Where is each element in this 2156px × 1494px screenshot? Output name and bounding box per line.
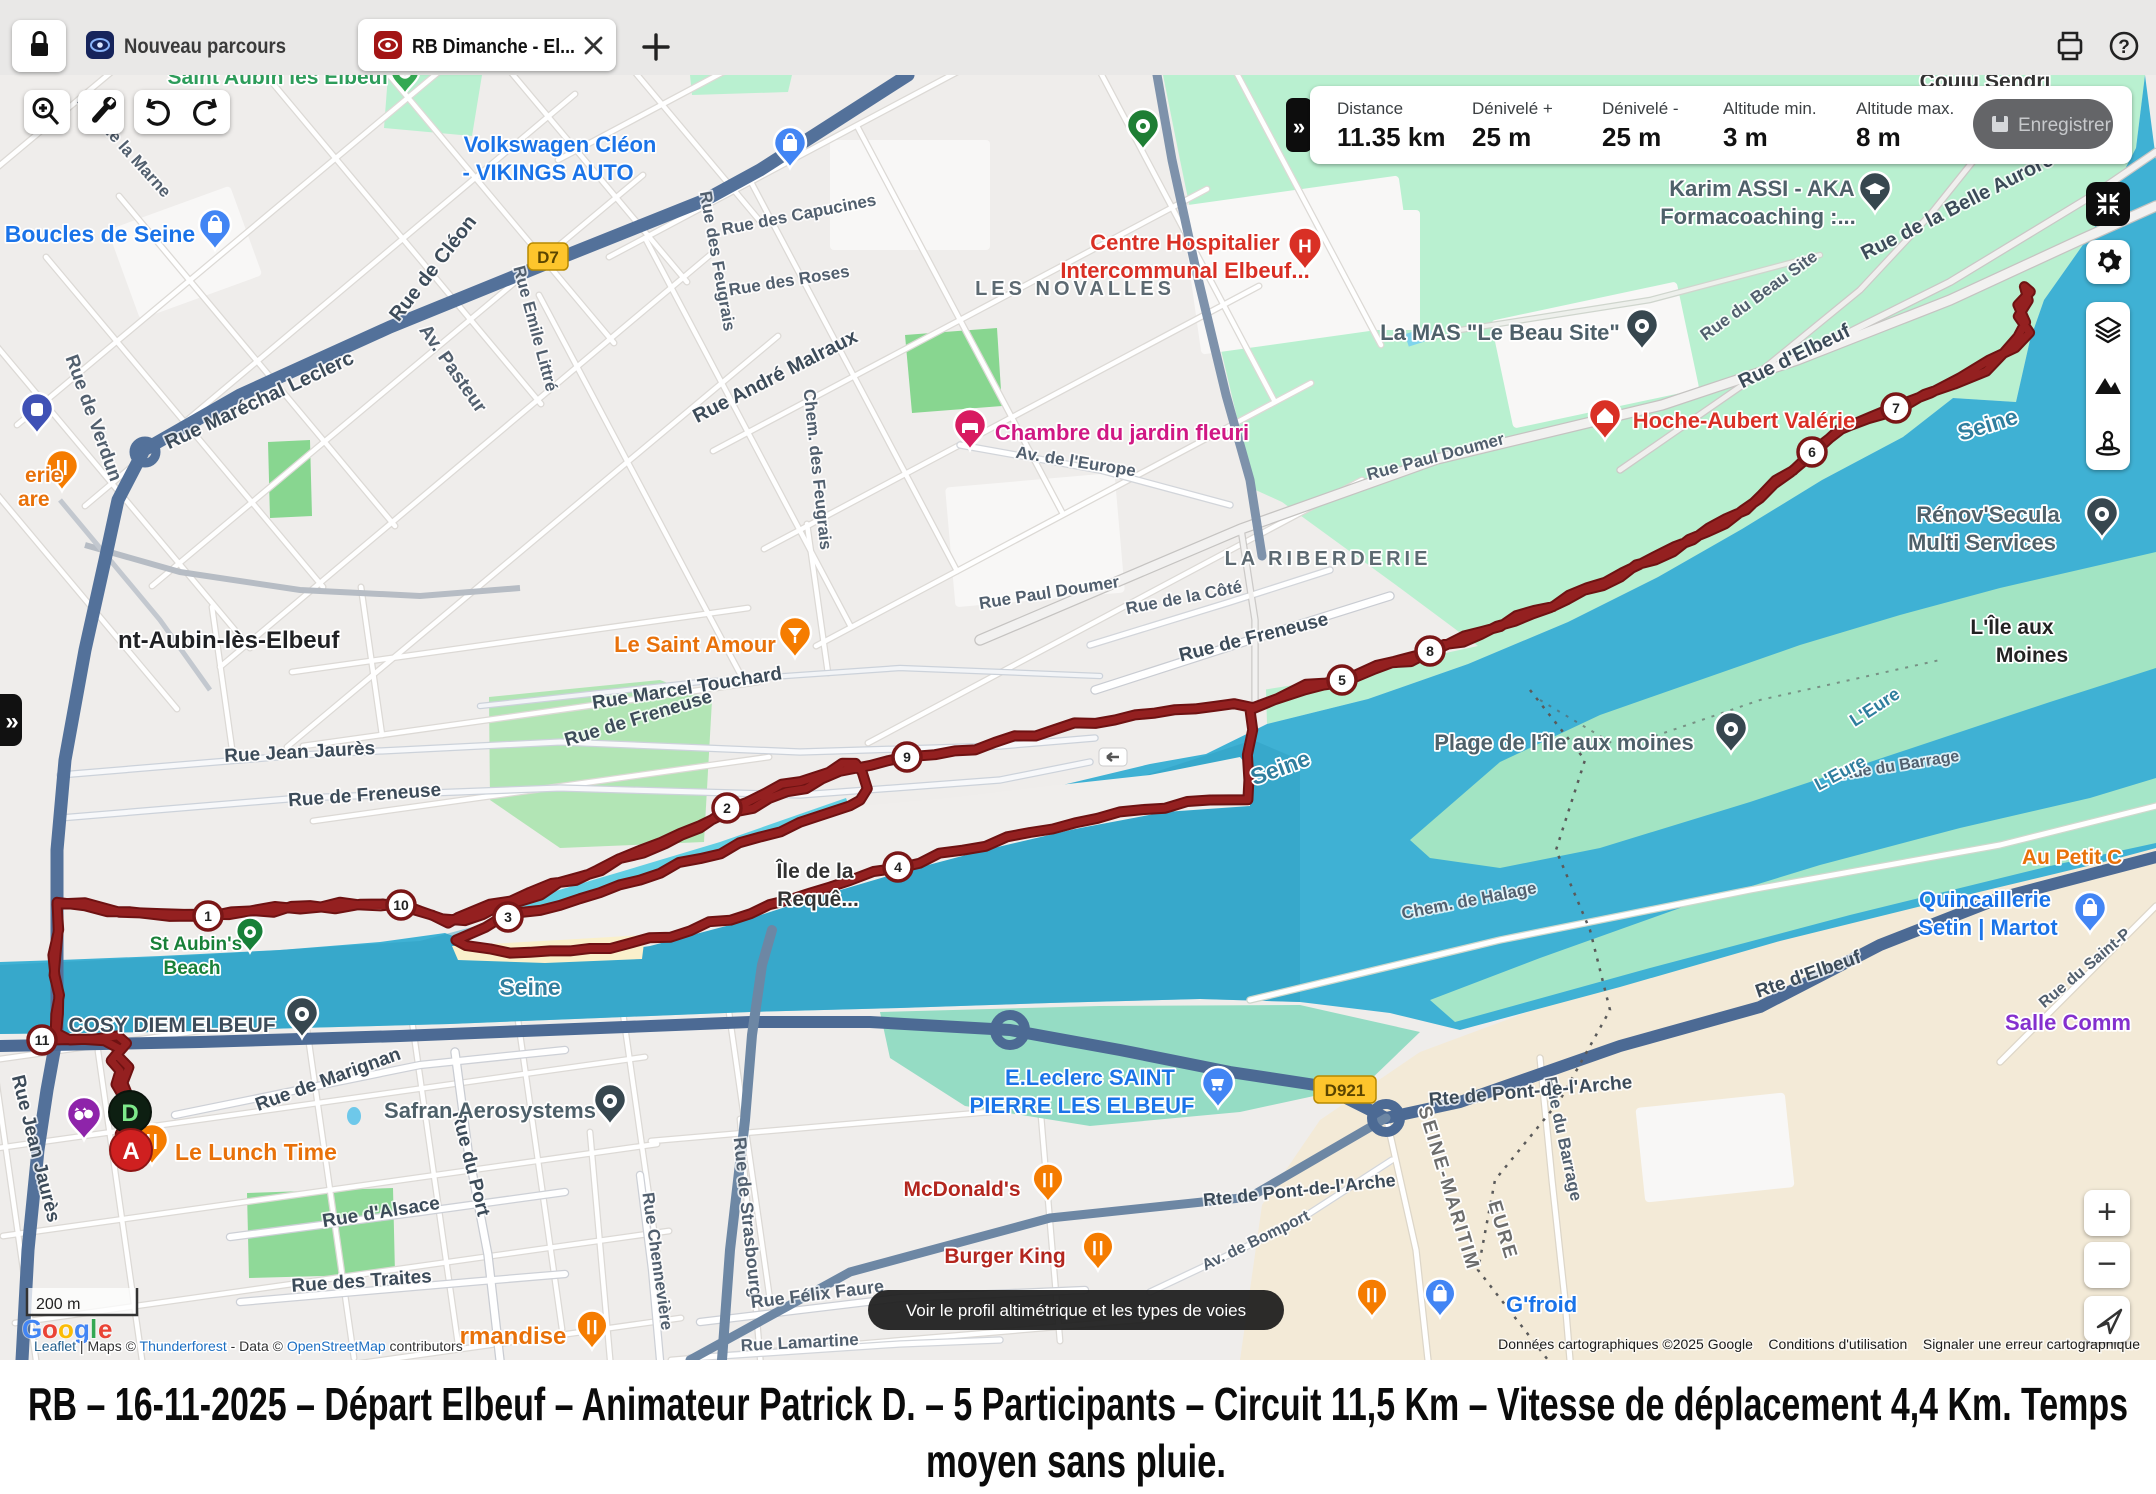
svg-text:G'froid: G'froid	[1506, 1292, 1577, 1317]
svg-text:Le Saint Amour: Le Saint Amour	[614, 632, 776, 657]
svg-text:Salle Comm: Salle Comm	[2005, 1010, 2131, 1035]
svg-text:Intercommunal Elbeuf...: Intercommunal Elbeuf...	[1060, 258, 1309, 283]
svg-text:10: 10	[393, 897, 409, 913]
svg-text:rmandise: rmandise	[460, 1323, 567, 1350]
svg-text:Quincaillerie: Quincaillerie	[1919, 887, 2051, 912]
svg-text:Centre Hospitalier: Centre Hospitalier	[1090, 230, 1280, 255]
svg-text:11: 11	[35, 1032, 50, 1048]
svg-text:200 m: 200 m	[36, 1296, 80, 1313]
svg-text:5: 5	[1338, 672, 1346, 688]
svg-text:25 m: 25 m	[1602, 122, 1661, 152]
svg-text:erie: erie	[25, 464, 62, 487]
svg-text:2: 2	[723, 800, 731, 816]
svg-text:Volkswagen Cléon: Volkswagen Cléon	[464, 132, 657, 157]
svg-text:Dénivelé +: Dénivelé +	[1472, 99, 1553, 118]
svg-text:1: 1	[204, 908, 212, 924]
svg-text:Seine: Seine	[499, 974, 560, 1000]
svg-text:−: −	[2097, 1245, 2117, 1283]
svg-text:Leaflet | Maps © Thunderforest: Leaflet | Maps © Thunderforest - Data © …	[34, 1338, 463, 1354]
svg-text:moyen sans pluie.: moyen sans pluie.	[926, 1435, 1226, 1487]
svg-text:Boucles de Seine: Boucles de Seine	[5, 221, 195, 247]
svg-text:6: 6	[1808, 444, 1816, 460]
svg-text:Requê...: Requê...	[777, 888, 859, 911]
svg-text:PIERRE LES ELBEUF: PIERRE LES ELBEUF	[970, 1093, 1195, 1118]
svg-text:Karim ASSI - AKA: Karim ASSI - AKA	[1669, 176, 1855, 201]
svg-text:Hoche-Aubert Valérie: Hoche-Aubert Valérie	[1633, 408, 1856, 433]
svg-text:3: 3	[504, 909, 512, 925]
svg-text:Beach: Beach	[163, 958, 220, 979]
svg-text:- VIKINGS AUTO: - VIKINGS AUTO	[462, 160, 633, 185]
svg-text:25 m: 25 m	[1472, 122, 1531, 152]
svg-text:Nouveau parcours: Nouveau parcours	[124, 35, 286, 58]
svg-text:3 m: 3 m	[1723, 122, 1768, 152]
svg-text:4: 4	[894, 859, 902, 875]
svg-text:D7: D7	[537, 248, 559, 267]
svg-text:D921: D921	[1325, 1081, 1366, 1100]
svg-text:8 m: 8 m	[1856, 122, 1901, 152]
svg-text:are: are	[18, 488, 50, 511]
svg-text:Altitude max.: Altitude max.	[1856, 99, 1954, 118]
svg-text:nt-Aubin-lès-Elbeuf: nt-Aubin-lès-Elbeuf	[118, 627, 340, 654]
svg-text:Distance: Distance	[1337, 99, 1403, 118]
svg-text:Voir le profil altimétrique et: Voir le profil altimétrique et les types…	[906, 1301, 1246, 1320]
svg-text:Altitude min.: Altitude min.	[1723, 99, 1817, 118]
svg-text:Données cartographiques ©2025: Données cartographiques ©2025 Google Con…	[1498, 1336, 2140, 1352]
svg-text:L'Île aux: L'Île aux	[1970, 615, 2054, 639]
svg-text:9: 9	[903, 749, 911, 765]
svg-text:Safran Aerosystems: Safran Aerosystems	[384, 1098, 596, 1123]
svg-text:RB – 16-11-2025 – Départ Elbeu: RB – 16-11-2025 – Départ Elbeuf – Animat…	[28, 1378, 2128, 1430]
svg-text:8: 8	[1426, 643, 1434, 659]
svg-text:Burger King: Burger King	[944, 1245, 1065, 1268]
svg-text:Plage de l'île aux moines: Plage de l'île aux moines	[1434, 730, 1694, 755]
svg-text:Le Lunch Time: Le Lunch Time	[175, 1139, 337, 1165]
svg-text:La MAS "Le Beau Site": La MAS "Le Beau Site"	[1380, 320, 1620, 345]
svg-text:Multi Services: Multi Services	[1908, 530, 2056, 555]
svg-text:Chambre du jardin fleuri: Chambre du jardin fleuri	[995, 420, 1249, 445]
svg-text:Dénivelé -: Dénivelé -	[1602, 99, 1679, 118]
svg-text:Rénov'Secula: Rénov'Secula	[1916, 502, 2060, 527]
svg-text:D: D	[121, 1100, 138, 1127]
svg-text:Au Petit C: Au Petit C	[2022, 846, 2122, 869]
svg-text:»: »	[5, 708, 18, 735]
svg-text:Formacoaching :...: Formacoaching :...	[1660, 204, 1856, 229]
svg-text:LA RIBERDERIE: LA RIBERDERIE	[1225, 548, 1432, 570]
svg-text:Setin | Martot: Setin | Martot	[1918, 915, 2058, 940]
svg-text:H: H	[1298, 237, 1312, 258]
svg-text:McDonald's: McDonald's	[903, 1178, 1020, 1201]
svg-text:St Aubin's: St Aubin's	[150, 934, 242, 955]
svg-text:11.35 km: 11.35 km	[1337, 122, 1445, 152]
svg-text:Enregistrer: Enregistrer	[2018, 115, 2112, 136]
svg-text:RB Dimanche - El...: RB Dimanche - El...	[412, 36, 575, 58]
svg-text:COSY DIEM ELBEUF: COSY DIEM ELBEUF	[68, 1014, 275, 1037]
svg-text:7: 7	[1892, 400, 1900, 416]
svg-text:E.Leclerc SAINT: E.Leclerc SAINT	[1005, 1065, 1176, 1090]
svg-text:Moines: Moines	[1996, 644, 2068, 667]
svg-text:»: »	[1293, 114, 1305, 139]
svg-text:Île de la: Île de la	[775, 859, 853, 883]
svg-text:A: A	[122, 1138, 139, 1165]
svg-text:?: ?	[2118, 37, 2130, 58]
svg-text:+: +	[2097, 1193, 2117, 1231]
